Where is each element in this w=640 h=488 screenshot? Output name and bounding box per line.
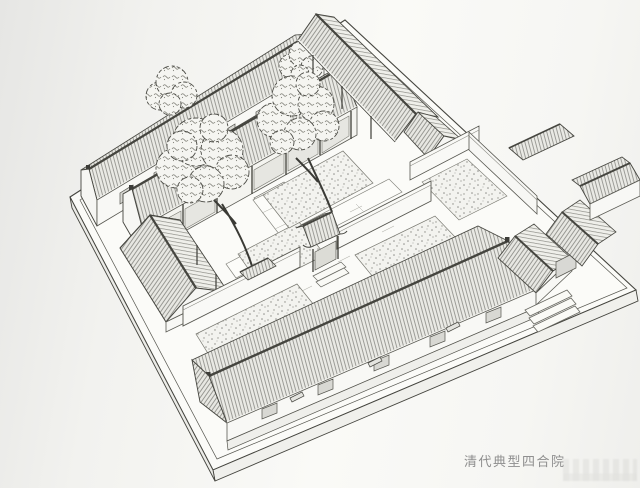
figure-caption: 清代典型四合院: [464, 451, 566, 470]
siheyuan-drawing: [0, 0, 640, 488]
scanned-illustration-page: 清代典型四合院: [0, 0, 640, 488]
watermark: [563, 459, 637, 481]
